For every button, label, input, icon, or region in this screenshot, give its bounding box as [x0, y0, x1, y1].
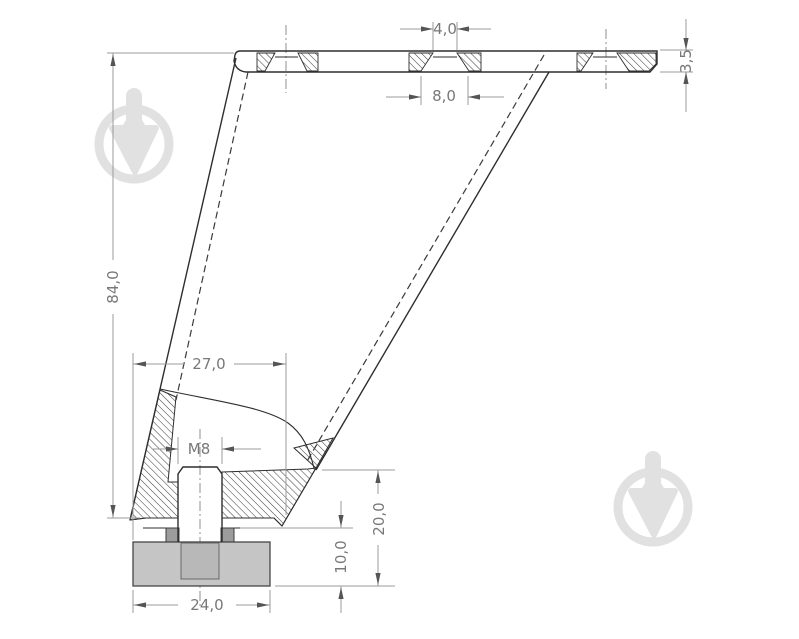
dim-4-0-label: 4,0 [433, 20, 457, 38]
dim-84-0-label: 84,0 [104, 270, 122, 303]
plate-outline [234, 51, 657, 72]
base-boss-wedge [294, 438, 333, 468]
dim-24-0-label: 24,0 [190, 596, 223, 614]
dim-10-0-label: 10,0 [332, 540, 350, 573]
stud-inside-foot [181, 543, 219, 579]
dim-arrow [338, 515, 343, 527]
dim-arrow [338, 587, 343, 599]
base-floor-right [222, 468, 316, 526]
technical-drawing-page: 4,0 8,0 3,5 84,0 27,0 M8 [0, 0, 799, 639]
dim-arrow [409, 94, 421, 99]
dim-arrow [257, 602, 269, 607]
dim-arrow [166, 446, 178, 451]
countersink-wall [257, 53, 275, 71]
foot-pad [133, 542, 270, 586]
countersink-wall [298, 53, 318, 71]
watermark-triangle [112, 128, 156, 172]
washer-tab-right [221, 528, 234, 542]
base-left-wall [130, 390, 178, 520]
countersink-wall [617, 53, 656, 71]
dim-arrow [375, 573, 380, 585]
plate-hole-center [409, 53, 481, 71]
dim-arrow [134, 602, 146, 607]
dim-8-0-label: 8,0 [432, 87, 456, 105]
leg-right-edge [316, 72, 549, 470]
dim-arrow [375, 471, 380, 483]
leg-right-hidden-edge [306, 55, 544, 463]
dim-arrow [222, 446, 234, 451]
technical-drawing-canvas: 4,0 8,0 3,5 84,0 27,0 M8 [0, 0, 799, 639]
dim-arrow [110, 505, 115, 517]
dim-m8-label: M8 [188, 440, 211, 458]
countersink-wall [457, 53, 481, 71]
dimension-slot-flare-width: 8,0 [386, 76, 504, 105]
dimension-plate-thickness: 3,5 [660, 19, 695, 112]
washer-tab-left [166, 528, 179, 542]
leg-inner-contour-curve [160, 389, 314, 468]
mounting-plate [234, 51, 657, 72]
dim-arrow [468, 94, 480, 99]
watermark-logo-bottom-right [618, 451, 688, 542]
countersink-wall [577, 53, 593, 71]
watermark-logo-top-left [99, 88, 169, 179]
plate-hole-right [577, 53, 656, 71]
dim-27-0-label: 27,0 [192, 355, 225, 373]
watermark-triangle [631, 491, 675, 535]
dimension-foot-width: 24,0 [133, 590, 270, 614]
leg-base-section [130, 390, 333, 542]
centerlines [200, 25, 606, 608]
dim-3-5-label: 3,5 [677, 49, 695, 73]
dim-arrow [457, 26, 469, 31]
dim-arrow [134, 361, 146, 366]
dim-arrow [110, 54, 115, 66]
dim-20-0-label: 20,0 [370, 502, 388, 535]
dim-arrow [683, 38, 688, 50]
dimension-slot-top-width: 4,0 [400, 20, 491, 50]
dim-arrow [273, 361, 285, 366]
plate-hole-left [257, 53, 318, 71]
countersink-wall [409, 53, 433, 71]
leg-left-hidden-edge [176, 72, 248, 400]
dim-arrow [421, 26, 433, 31]
